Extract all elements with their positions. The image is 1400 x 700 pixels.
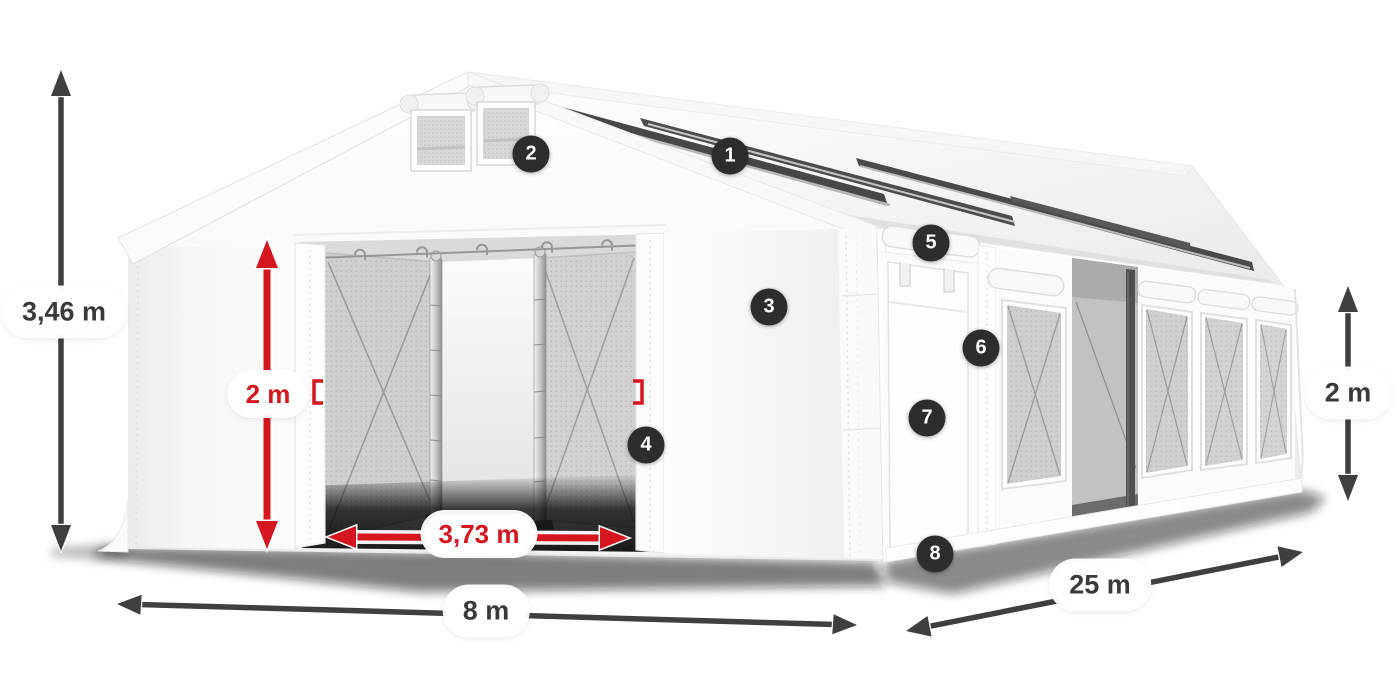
side-window-1 (987, 248, 1072, 543)
front-door-opening (300, 234, 662, 556)
callout-badge-5[interactable]: 5 (913, 225, 950, 262)
tent-dimensions-diagram: 3,46 m 2 m 3,73 m 8 m 25 m 2 m 1 2 3 4 5… (0, 0, 1400, 700)
dimension-label-side-height: 2 m (1309, 371, 1388, 416)
dimension-label-tent-width: 8 m (447, 589, 526, 634)
side-open-bay (1072, 258, 1138, 530)
callout-badge-8[interactable]: 8 (917, 536, 954, 573)
side-door (881, 225, 981, 561)
callout-badge-6[interactable]: 6 (963, 330, 1000, 367)
tent-illustration (0, 0, 1400, 700)
dimension-label-tent-length: 25 m (1053, 563, 1147, 608)
dimension-label-total-height: 3,46 m (6, 290, 122, 335)
dimension-label-door-height: 2 m (232, 374, 305, 414)
callout-badge-1[interactable]: 1 (712, 138, 749, 175)
side-window-3 (1197, 275, 1252, 509)
callout-badge-4[interactable]: 4 (628, 427, 665, 464)
callout-badge-2[interactable]: 2 (513, 136, 550, 173)
callout-badge-7[interactable]: 7 (909, 400, 946, 437)
dimension-label-door-width: 3,73 m (425, 514, 534, 554)
side-window-4 (1251, 283, 1298, 499)
side-window-2 (1137, 267, 1197, 519)
callout-badge-3[interactable]: 3 (751, 289, 788, 326)
